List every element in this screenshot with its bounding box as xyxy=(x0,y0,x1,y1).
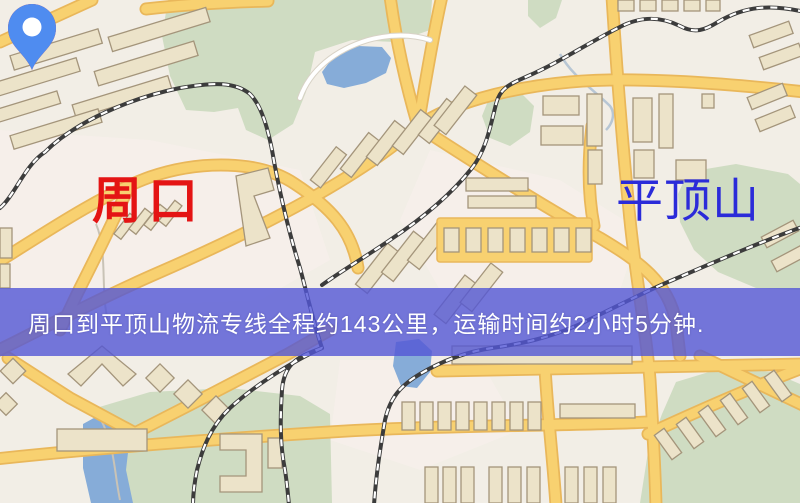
route-info-banner: 周口到平顶山物流专线全程约143公里，运输时间约2小时5分钟. xyxy=(0,288,800,356)
map-canvas[interactable] xyxy=(0,0,800,503)
map-screenshot: 周口 平顶山 周口到平顶山物流专线全程约143公里，运输时间约2小时5分钟. xyxy=(0,0,800,503)
route-info-text: 周口到平顶山物流专线全程约143公里，运输时间约2小时5分钟. xyxy=(0,305,704,339)
destination-pin-icon[interactable] xyxy=(0,0,64,76)
